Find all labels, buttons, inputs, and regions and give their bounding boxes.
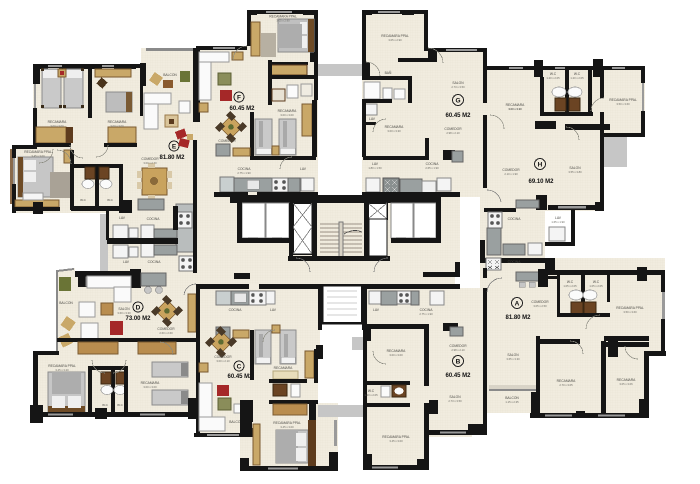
svg-text:LAV: LAV	[270, 308, 277, 312]
svg-text:BALCON: BALCON	[505, 396, 519, 400]
svg-text:RECAMARA: RECAMARA	[387, 349, 406, 353]
svg-text:SALON: SALON	[569, 166, 581, 170]
svg-text:3.65 x 3.30: 3.65 x 3.30	[506, 357, 520, 361]
svg-text:W.C: W.C	[107, 198, 113, 202]
svg-text:3.00 x 3.00: 3.00 x 3.00	[389, 353, 403, 357]
svg-text:60.45 M2: 60.45 M2	[445, 373, 471, 379]
svg-text:RECAMARA: RECAMARA	[278, 109, 297, 113]
svg-text:3.00 x 3.00: 3.00 x 3.00	[143, 385, 157, 389]
svg-text:1.15 x 2.35: 1.15 x 2.35	[505, 400, 519, 404]
svg-text:3.00 x 3.00: 3.00 x 3.00	[280, 113, 294, 117]
svg-text:BAÑ: BAÑ	[385, 70, 392, 75]
svg-text:RECAMARA PPAL: RECAMARA PPAL	[382, 435, 410, 439]
svg-text:RECAMARA PPAL: RECAMARA PPAL	[381, 34, 409, 38]
svg-text:COMEDOR: COMEDOR	[157, 327, 175, 331]
svg-text:B: B	[456, 359, 461, 366]
svg-text:LAV: LAV	[372, 162, 379, 166]
svg-text:RECAMARA: RECAMARA	[141, 381, 160, 385]
svg-text:RECAMARA PPAL: RECAMARA PPAL	[48, 364, 76, 368]
svg-text:E: E	[172, 144, 177, 151]
svg-text:COMEDOR: COMEDOR	[218, 139, 236, 143]
svg-text:RECAMARA PPAL: RECAMARA PPAL	[609, 98, 637, 102]
svg-text:3.60 x 3.30: 3.60 x 3.30	[117, 311, 131, 315]
svg-text:81.80 M2: 81.80 M2	[505, 315, 531, 321]
svg-text:SALON: SALON	[507, 353, 519, 357]
svg-text:SALON: SALON	[452, 81, 464, 85]
svg-text:RECAMARA: RECAMARA	[108, 120, 127, 124]
svg-text:LAV: LAV	[555, 216, 562, 220]
svg-text:W.C: W.C	[550, 72, 557, 76]
svg-text:60.45 M2: 60.45 M2	[229, 106, 255, 112]
svg-text:RECAMARA: RECAMARA	[617, 378, 636, 382]
svg-text:2.60 x 2.60: 2.60 x 2.60	[159, 331, 173, 335]
svg-text:COCINA: COCINA	[238, 167, 252, 171]
svg-text:3.00 x 2.10: 3.00 x 2.10	[216, 359, 230, 363]
svg-text:RECAMARA: RECAMARA	[48, 120, 67, 124]
svg-text:3.00 x 3.30: 3.00 x 3.30	[387, 129, 401, 133]
svg-text:1.20 x 2.05: 1.20 x 2.05	[364, 393, 378, 397]
svg-text:1.65 x 1.90: 1.65 x 1.90	[551, 220, 565, 224]
svg-text:W.C: W.C	[368, 389, 375, 393]
svg-text:2.98 x 2.10: 2.98 x 2.10	[451, 348, 465, 352]
svg-text:BALCON: BALCON	[163, 73, 177, 77]
svg-text:LAV: LAV	[123, 260, 130, 264]
svg-text:COMEDOR: COMEDOR	[502, 168, 520, 172]
svg-text:60.45 M2: 60.45 M2	[227, 374, 253, 380]
svg-text:SALON: SALON	[118, 307, 130, 311]
svg-text:RECAMARA PPAL: RECAMARA PPAL	[269, 15, 297, 19]
svg-text:1.80 x 1.50: 1.80 x 1.50	[368, 166, 382, 170]
svg-text:RECAMARA: RECAMARA	[557, 379, 576, 383]
svg-text:A: A	[515, 301, 520, 308]
svg-text:F: F	[237, 95, 241, 102]
svg-text:3.45 x 3.20: 3.45 x 3.20	[55, 368, 69, 372]
svg-text:COCINA: COCINA	[229, 308, 243, 312]
svg-text:RECAMARA: RECAMARA	[506, 103, 525, 107]
svg-text:COCINA: COCINA	[148, 260, 162, 264]
svg-text:3.00 x 3.00: 3.00 x 3.00	[50, 124, 64, 128]
svg-text:3.00 x 3.30: 3.00 x 3.30	[508, 107, 522, 111]
svg-text:2.73 x 3.50: 2.73 x 3.50	[448, 399, 462, 403]
svg-text:RECAMARA: RECAMARA	[385, 125, 404, 129]
svg-text:SALON: SALON	[449, 395, 461, 399]
svg-text:COCINA: COCINA	[508, 260, 522, 264]
svg-text:D: D	[136, 305, 141, 312]
svg-text:3.00 x 3.00: 3.00 x 3.00	[110, 124, 124, 128]
svg-text:COMEDOR: COMEDOR	[449, 344, 467, 348]
svg-text:RECAMARA PPAL: RECAMARA PPAL	[24, 150, 52, 154]
svg-text:W.C: W.C	[80, 198, 86, 202]
svg-text:2.75 x 1.90: 2.75 x 1.90	[237, 171, 251, 175]
svg-text:2.98 x 2.10: 2.98 x 2.10	[446, 131, 460, 135]
svg-text:60.45 M2: 60.45 M2	[445, 113, 471, 119]
svg-text:W.C: W.C	[567, 280, 574, 284]
svg-text:3.05 x 3.06: 3.05 x 3.06	[619, 382, 633, 386]
svg-text:3.45 x 3.00: 3.45 x 3.00	[31, 154, 45, 158]
svg-text:3.45 x 3.00: 3.45 x 3.00	[280, 425, 294, 429]
svg-text:1.20 x 2.05: 1.20 x 2.05	[570, 76, 584, 80]
svg-text:3.45 x 3.00: 3.45 x 3.00	[389, 439, 403, 443]
svg-text:LAV: LAV	[119, 216, 126, 220]
svg-text:3.55 x 3.80: 3.55 x 3.80	[568, 170, 582, 174]
svg-text:3.50 x 3.60: 3.50 x 3.60	[623, 310, 637, 314]
svg-text:1.05 x 2.05: 1.05 x 2.05	[589, 284, 603, 288]
svg-text:C: C	[237, 364, 242, 371]
svg-text:RECAMARA: RECAMARA	[274, 366, 293, 370]
svg-text:BALCON: BALCON	[59, 301, 73, 305]
svg-text:W.C: W.C	[574, 72, 581, 76]
svg-text:COCINA: COCINA	[420, 308, 434, 312]
svg-text:COMEDOR: COMEDOR	[444, 127, 462, 131]
svg-text:1.05 x 2.05: 1.05 x 2.05	[563, 284, 577, 288]
svg-text:81.80 M2: 81.80 M2	[159, 155, 185, 161]
svg-text:W.C: W.C	[593, 280, 600, 284]
svg-text:G: G	[455, 98, 460, 105]
svg-text:COMEDOR: COMEDOR	[214, 355, 232, 359]
svg-text:3.00 x 2.70: 3.00 x 2.70	[143, 161, 157, 165]
svg-text:2.65 x 1.90: 2.65 x 1.90	[425, 166, 439, 170]
svg-text:2.75 x 1.90: 2.75 x 1.90	[419, 312, 433, 316]
svg-text:RECAMARA PPAL: RECAMARA PPAL	[616, 306, 644, 310]
svg-text:COCINA: COCINA	[426, 162, 440, 166]
svg-text:LAV: LAV	[300, 167, 307, 171]
svg-text:RECAMARA PPAL: RECAMARA PPAL	[273, 421, 301, 425]
svg-text:3.05 x 2.90: 3.05 x 2.90	[276, 19, 290, 23]
svg-text:3.05 x 2.90: 3.05 x 2.90	[388, 38, 402, 42]
svg-text:1.20 x 2.05: 1.20 x 2.05	[546, 76, 560, 80]
svg-text:2.10 x 1.90: 2.10 x 1.90	[504, 172, 518, 176]
svg-text:LAV: LAV	[369, 117, 376, 121]
svg-text:H: H	[538, 162, 543, 169]
svg-text:W.C: W.C	[117, 403, 123, 407]
svg-text:COCINA: COCINA	[508, 217, 522, 221]
svg-text:COCINA: COCINA	[147, 217, 161, 221]
svg-text:COMEDOR: COMEDOR	[141, 157, 159, 161]
svg-text:LAV: LAV	[373, 308, 380, 312]
svg-text:3.05 x 2.50: 3.05 x 2.50	[533, 304, 547, 308]
svg-text:2.70 x 3.05: 2.70 x 3.05	[559, 383, 573, 387]
svg-text:3.50 x 3.60: 3.50 x 3.60	[616, 102, 630, 106]
svg-text:69.10 M2: 69.10 M2	[528, 179, 554, 185]
svg-text:W.C: W.C	[102, 403, 108, 407]
svg-text:73.00 M2: 73.00 M2	[125, 316, 151, 322]
svg-text:COMEDOR: COMEDOR	[531, 300, 549, 304]
svg-text:2.73 x 3.50: 2.73 x 3.50	[451, 85, 465, 89]
